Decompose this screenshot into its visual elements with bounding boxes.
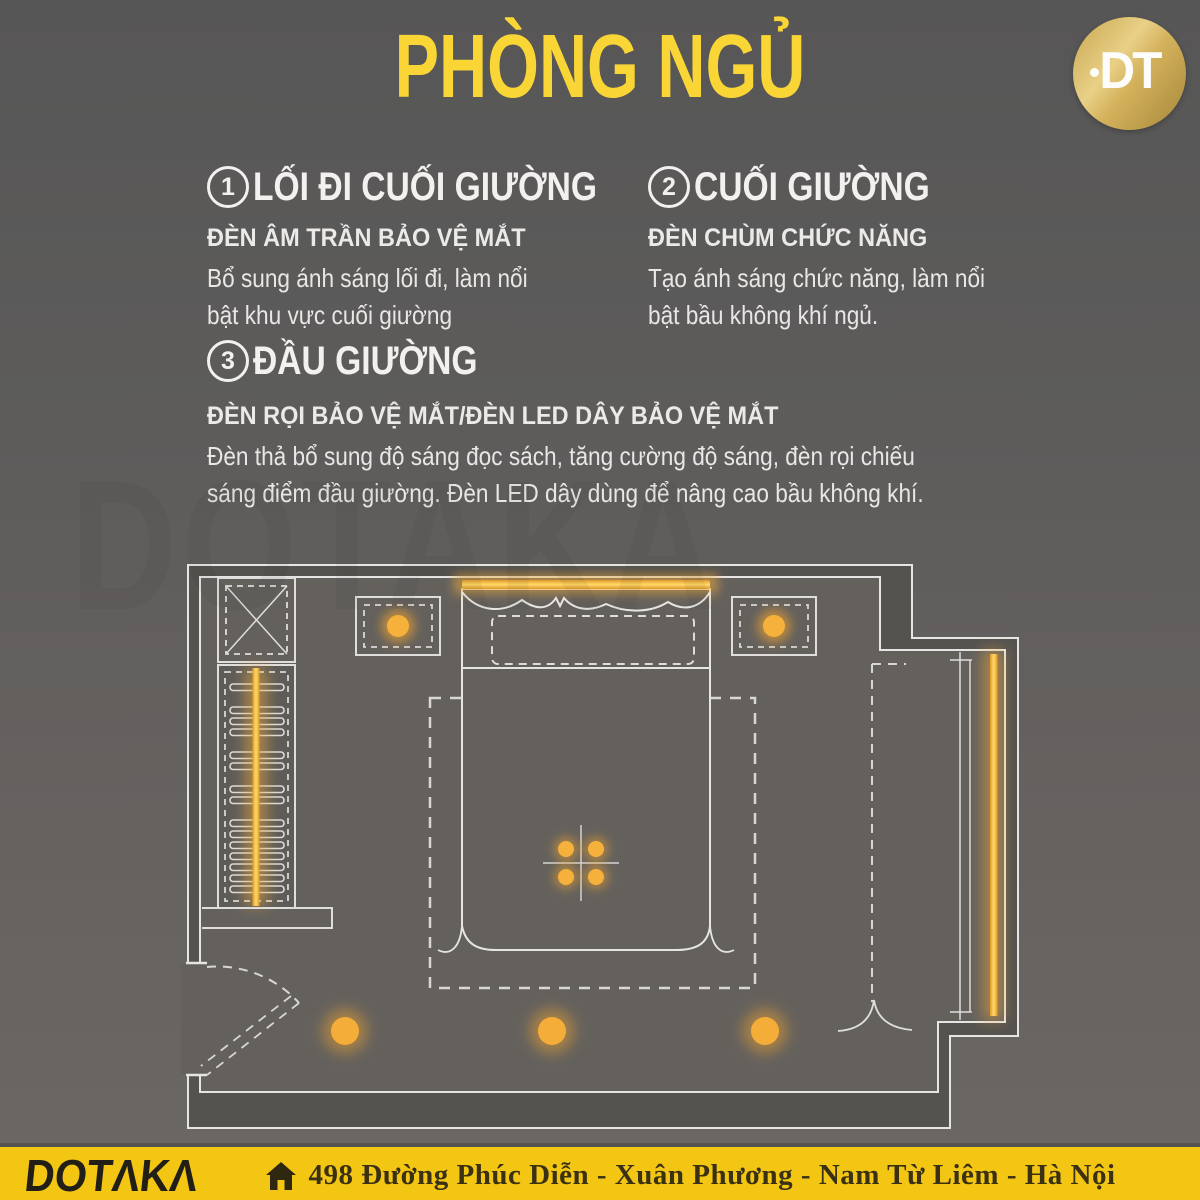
section-2-body: Tạo ánh sáng chức năng, làm nổi bật bầu … bbox=[648, 260, 985, 334]
section-3-body-line2: sáng điểm đầu giường. Đèn LED dây dùng đ… bbox=[207, 475, 924, 512]
bed-headboard bbox=[462, 589, 710, 668]
brand-logo-dot bbox=[1090, 68, 1099, 77]
section-1-body-line1: Bổ sung ánh sáng lối đi, làm nổi bbox=[207, 260, 528, 297]
section-3-subtitle: ĐÈN RỌI BẢO VỆ MẮT/ĐÈN LED DÂY BẢO VỆ MẮ… bbox=[207, 402, 778, 431]
section-2-body-line1: Tạo ánh sáng chức năng, làm nổi bbox=[648, 260, 985, 297]
section-2-body-line2: bật bầu không khí ngủ. bbox=[648, 297, 985, 334]
floor-plan bbox=[0, 540, 1200, 1143]
section-3-title: ĐẦU GIƯỜNG bbox=[253, 339, 478, 384]
section-3-body: Đèn thả bổ sung độ sáng đọc sách, tăng c… bbox=[207, 438, 924, 512]
home-icon bbox=[265, 1161, 297, 1191]
footer-bar: DOTΛKΛ 498 Đường Phúc Diễn - Xuân Phương… bbox=[0, 1143, 1200, 1200]
section-1-heading: 1 LỐI ĐI CUỐI GIƯỜNG bbox=[207, 166, 663, 208]
section-3-body-line1: Đèn thả bổ sung độ sáng đọc sách, tăng c… bbox=[207, 438, 924, 475]
wardrobe-led-strip bbox=[253, 668, 260, 906]
section-3-number-badge: 3 bbox=[207, 340, 249, 382]
section-1-title: LỐI ĐI CUỐI GIƯỜNG bbox=[253, 165, 597, 210]
section-1-subtitle: ĐÈN ÂM TRẦN BẢO VỆ MẮT bbox=[207, 224, 526, 253]
section-1-body: Bổ sung ánh sáng lối đi, làm nổi bật khu… bbox=[207, 260, 528, 334]
section-1-body-line2: bật khu vực cuối giường bbox=[207, 297, 528, 334]
bed-headboard-led-strip bbox=[462, 580, 710, 589]
bed bbox=[438, 574, 734, 952]
bay-window-led-strip bbox=[990, 654, 998, 1016]
section-3-heading: 3 ĐẦU GIƯỜNG bbox=[207, 340, 520, 382]
infographic-poster: PHÒNG NGỦ DT 1 LỐI ĐI CUỐI GIƯỜNG ĐÈN ÂM… bbox=[0, 0, 1200, 1200]
footer-brand-logo: DOTΛKΛ bbox=[22, 1150, 200, 1200]
section-1-number-badge: 1 bbox=[207, 166, 249, 208]
footer-address: 498 Đường Phúc Diễn - Xuân Phương - Nam … bbox=[309, 1159, 1116, 1192]
section-2-title: CUỐI GIƯỜNG bbox=[694, 165, 930, 210]
page-title: PHÒNG NGỦ bbox=[156, 16, 1044, 119]
brand-logo-dt: DT bbox=[1073, 17, 1186, 130]
section-2-heading: 2 CUỐI GIƯỜNG bbox=[648, 166, 975, 208]
section-2-number-badge: 2 bbox=[648, 166, 690, 208]
section-2-subtitle: ĐÈN CHÙM CHỨC NĂNG bbox=[648, 224, 927, 253]
footer-address-block: 498 Đường Phúc Diễn - Xuân Phương - Nam … bbox=[265, 1159, 1116, 1192]
